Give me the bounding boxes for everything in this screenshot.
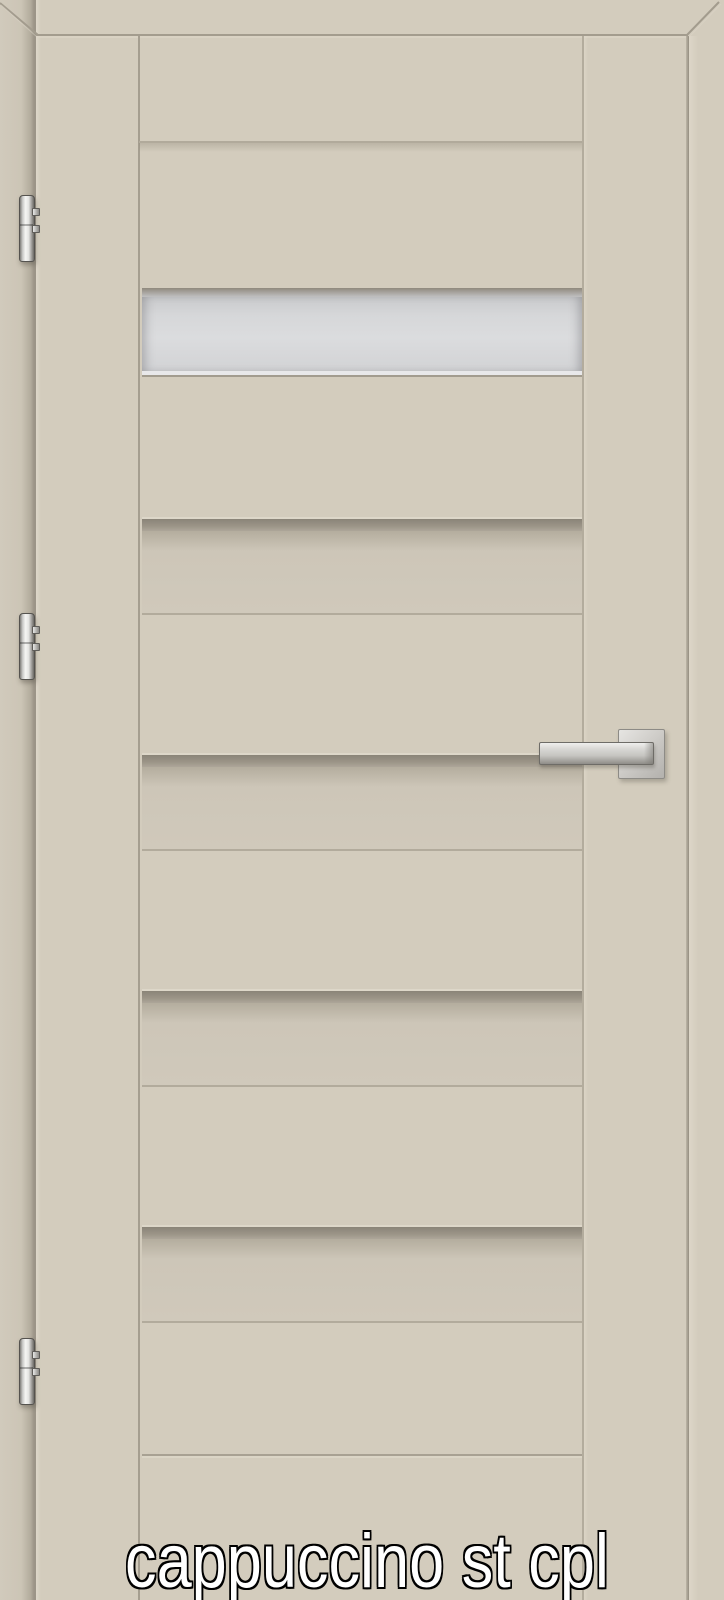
top-hinge (19, 195, 39, 261)
slat-groove-fade (142, 767, 582, 787)
door-lock-stile-highlight (584, 36, 588, 1600)
hinge-pin (32, 643, 40, 651)
glass-panel (142, 297, 582, 371)
slat-bottom-line (142, 849, 582, 851)
hinge-pin (32, 1351, 40, 1359)
glass-panel-top-shadow (142, 288, 582, 297)
handle-neck-shade (644, 743, 653, 764)
frame-right-edge-highlight (689, 36, 698, 1600)
hinge-pin (32, 626, 40, 634)
frame-head-edge-highlight (36, 36, 688, 38)
slat-bottom-line (142, 1321, 582, 1323)
slat-groove-fade (142, 531, 582, 551)
product-caption: cappuccino st cpl (125, 1524, 609, 1600)
slat-bottom-line (142, 1085, 582, 1087)
slat-groove-shadow (142, 1227, 582, 1239)
slat-groove-shadow (142, 991, 582, 1003)
recessed-band (142, 787, 582, 849)
middle-hinge (19, 613, 39, 679)
slat-groove-shadow (142, 519, 582, 531)
bottom-hinge (19, 1338, 39, 1404)
recessed-band (142, 551, 582, 613)
hinge-pin (32, 1368, 40, 1376)
door-top-rail-shadow (139, 143, 582, 152)
slat-groove-fade (142, 1003, 582, 1023)
door-handle-lever (539, 742, 654, 765)
door-bottom-rail-highlight (142, 1456, 582, 1458)
recessed-band (142, 1259, 582, 1321)
door-hinge-side-gap (138, 36, 140, 1600)
hinge-pin (32, 225, 40, 233)
recessed-band (142, 1023, 582, 1085)
door-product-image: cappuccino st cpl (0, 0, 724, 1600)
slat-bottom-line (142, 613, 582, 615)
hinge-pin (32, 208, 40, 216)
slat-groove-shadow (142, 755, 582, 767)
glass-bead-line (142, 375, 582, 377)
slat-groove-fade (142, 1239, 582, 1259)
